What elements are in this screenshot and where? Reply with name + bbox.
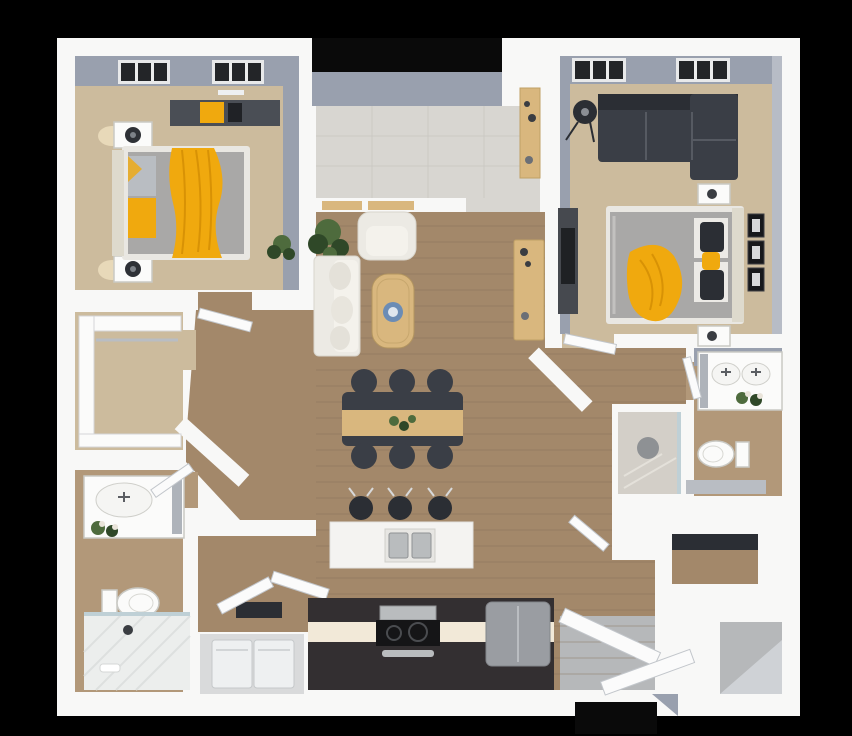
bedroom1-window xyxy=(212,60,264,84)
accent-pillow xyxy=(700,270,724,300)
shower-head xyxy=(637,437,659,459)
bath-mat xyxy=(100,664,120,672)
dining-area xyxy=(342,369,463,469)
shower xyxy=(84,612,190,690)
double-sink xyxy=(385,529,435,562)
closet-a-shelf xyxy=(672,534,758,550)
floor-plan-canvas xyxy=(0,0,852,736)
bedroom1-window xyxy=(118,60,170,84)
cabinet-decor xyxy=(524,101,530,107)
transom-window xyxy=(322,201,362,210)
laundry-opening xyxy=(236,602,282,618)
cabinet-decor xyxy=(525,156,533,164)
dresser-frame xyxy=(228,103,242,122)
vanity-mirror xyxy=(700,354,708,408)
dryer xyxy=(254,640,294,688)
accent-pillow xyxy=(700,222,724,252)
decor-plate xyxy=(388,307,398,317)
wall-art xyxy=(218,90,244,95)
nightstand-decor xyxy=(707,189,717,199)
cabinet-decor xyxy=(528,114,536,122)
sofa-pillow xyxy=(329,262,351,290)
bed xyxy=(112,146,250,260)
rear-door-opening xyxy=(575,702,657,734)
pillow xyxy=(128,198,156,238)
throw-blanket xyxy=(169,148,222,258)
dining-chairs-top xyxy=(351,369,453,395)
transom-window xyxy=(368,201,414,210)
entry xyxy=(520,88,540,178)
bedroom2-right-wall-face xyxy=(772,56,782,334)
armchair xyxy=(358,212,416,260)
bedroom2-window xyxy=(676,58,730,82)
shower-fixture xyxy=(123,625,133,635)
entry-opening-floor xyxy=(466,198,540,214)
oven-handle xyxy=(382,650,434,657)
bedroom1-top-wall-face xyxy=(75,56,299,86)
dresser xyxy=(170,100,280,126)
closet-shelf xyxy=(79,316,94,446)
lamp-icon xyxy=(130,266,136,272)
wall-frames xyxy=(748,214,764,291)
tv-screen xyxy=(561,228,575,284)
front-door-opening xyxy=(312,38,502,72)
accent-pillow xyxy=(702,252,720,270)
shower-glass xyxy=(84,612,190,616)
dresser-decor xyxy=(200,102,224,123)
closet-shelf xyxy=(79,434,181,447)
sofa-pillow xyxy=(330,326,350,350)
nightstand-decor xyxy=(707,331,717,341)
bedroom2-window xyxy=(572,58,626,82)
bed xyxy=(606,206,744,324)
dining-chairs-bottom xyxy=(351,443,453,469)
floor-plan xyxy=(0,0,852,736)
shower-glass xyxy=(677,412,681,494)
sofa-pillow xyxy=(331,296,353,324)
washer xyxy=(212,640,252,688)
sofa xyxy=(314,256,360,356)
bench-counter xyxy=(686,480,766,494)
hall-door-opening-floor xyxy=(198,292,252,312)
entry-wall-face xyxy=(312,72,502,106)
vanity-mirror xyxy=(172,480,182,534)
lamp-icon xyxy=(130,132,136,138)
shoe-cabinet xyxy=(520,88,540,178)
media-console xyxy=(514,240,544,340)
coffee-table xyxy=(372,274,414,348)
toilet xyxy=(698,441,749,467)
closet-door-floor xyxy=(183,330,196,370)
